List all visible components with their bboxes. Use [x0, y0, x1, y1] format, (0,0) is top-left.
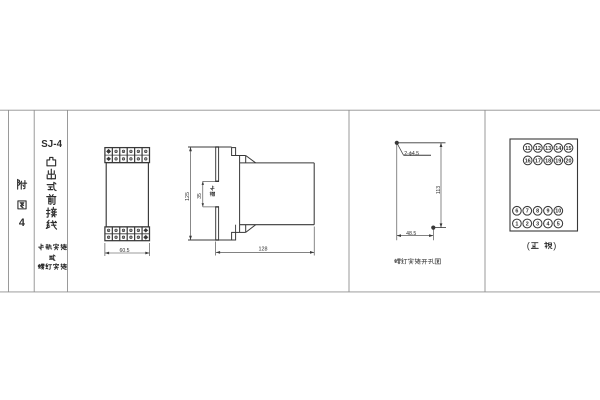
svg-text:17: 17	[535, 158, 541, 164]
svg-text:3: 3	[536, 221, 539, 227]
svg-text:6: 6	[515, 209, 518, 215]
svg-text:113: 113	[436, 186, 442, 194]
svg-text:12: 12	[535, 146, 541, 152]
svg-text:19: 19	[555, 158, 561, 164]
svg-text:48.5: 48.5	[406, 231, 416, 237]
svg-text:11: 11	[525, 146, 531, 152]
svg-text:5: 5	[557, 221, 560, 227]
svg-text:): )	[553, 241, 556, 251]
svg-text:1: 1	[515, 221, 518, 227]
svg-text:2-ϕ4.5: 2-ϕ4.5	[404, 151, 419, 157]
svg-text:13: 13	[545, 146, 551, 152]
svg-text:128: 128	[259, 247, 268, 253]
svg-text:10: 10	[555, 209, 561, 215]
svg-text:(: (	[527, 241, 530, 251]
svg-text:20: 20	[566, 158, 572, 164]
svg-text:60.5: 60.5	[119, 248, 129, 254]
svg-text:15: 15	[566, 146, 572, 152]
svg-text:9: 9	[546, 209, 549, 215]
svg-text:SJ-4: SJ-4	[41, 139, 62, 150]
svg-text:8: 8	[536, 209, 539, 215]
svg-text:4: 4	[546, 221, 549, 227]
svg-text:2: 2	[526, 221, 529, 227]
svg-text:125: 125	[185, 192, 191, 201]
svg-text:7: 7	[526, 209, 529, 215]
svg-text:35: 35	[197, 193, 203, 199]
svg-text:4: 4	[19, 217, 25, 229]
svg-text:14: 14	[555, 146, 561, 152]
svg-text:16: 16	[525, 158, 531, 164]
svg-text:18: 18	[545, 158, 551, 164]
